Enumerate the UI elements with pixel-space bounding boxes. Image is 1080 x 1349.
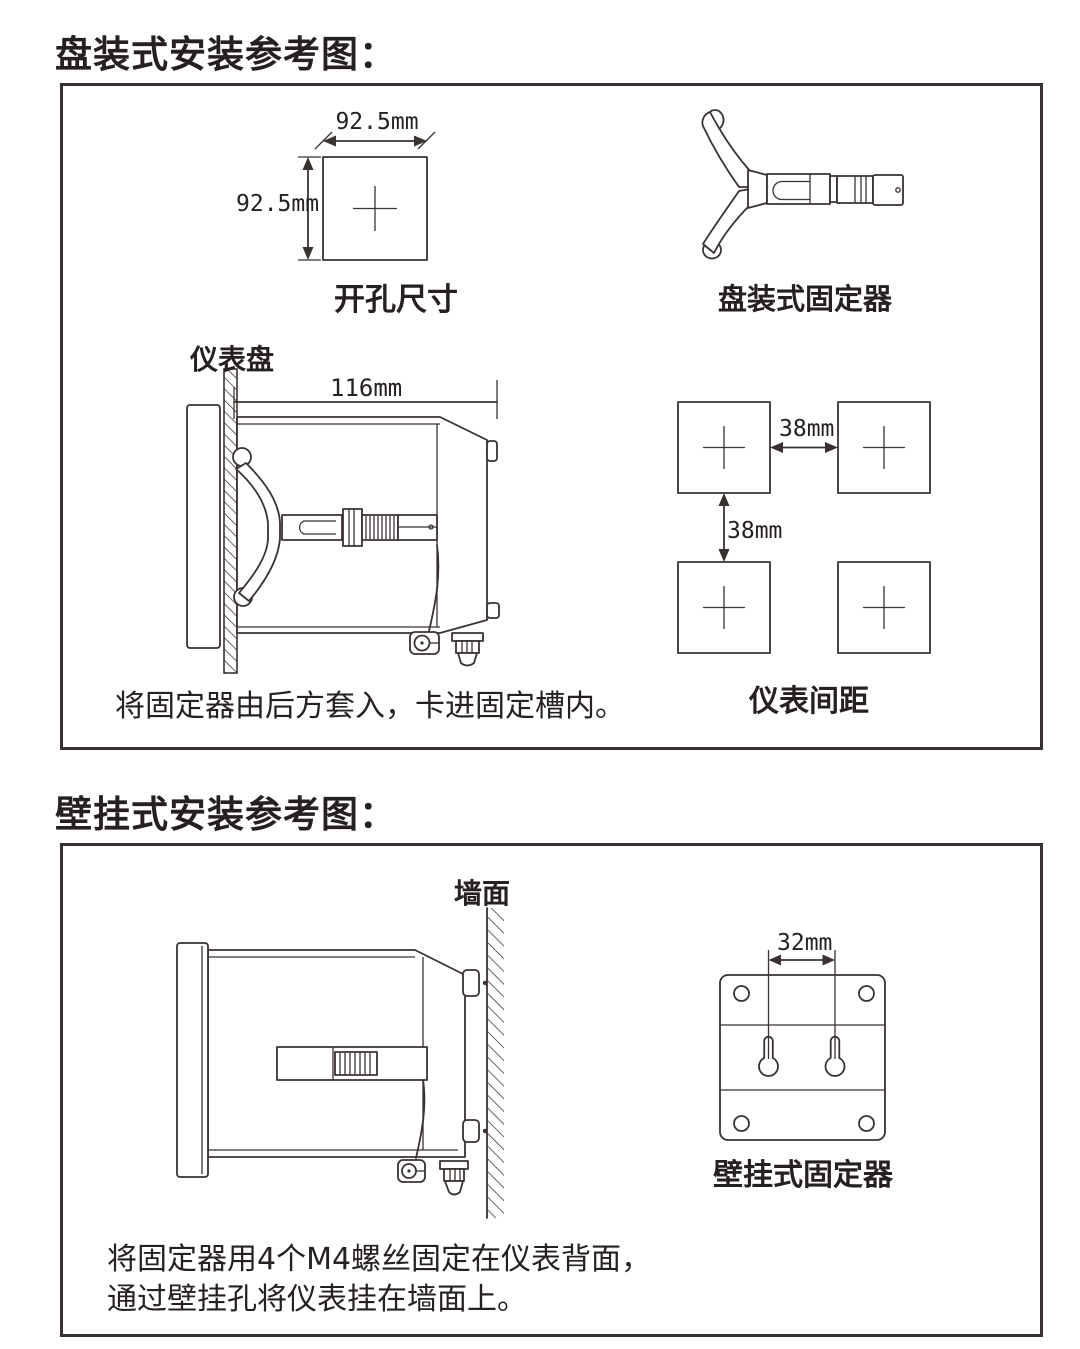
- wall-bracket-drawing: [700, 925, 910, 1160]
- cable-gland: [440, 1161, 468, 1195]
- wall-section-title: 壁挂式安装参考图：: [55, 784, 397, 838]
- wall-mount-caption-line1: 将固定器用4个M4螺丝固定在仪表背面，: [107, 1234, 651, 1278]
- panel-fixer-label: 盘装式固定器: [705, 276, 905, 318]
- cutout-width-dimension: 92.5mm: [330, 109, 424, 135]
- fixer-shaft: [767, 174, 903, 205]
- fixer-handle: [702, 110, 767, 259]
- wall-hatch: [487, 908, 504, 1218]
- cable-gland: [452, 633, 483, 666]
- panel-mount-caption: 将固定器由后方套入，卡进固定槽内。: [115, 681, 625, 725]
- depth-dimension: 116mm: [330, 374, 400, 402]
- panel-surface-label: 仪表盘: [190, 338, 274, 378]
- bottom-screw: [410, 632, 439, 654]
- spacing-label: 仪表间距: [729, 676, 889, 720]
- manual-page: 盘装式安装参考图： 92.5mm 92.5mm 开孔尺寸: [0, 0, 1080, 1349]
- instrument-panel-hatch: [224, 369, 237, 673]
- probe-bar: [277, 1047, 427, 1080]
- wall-sideview-drawing: [160, 870, 520, 1230]
- bottom-screw: [398, 1160, 425, 1182]
- wall-surface-label: 墙面: [454, 872, 510, 912]
- h-gap-dimension: 38mm: [779, 416, 834, 442]
- front-bezel: [177, 943, 208, 1177]
- keyhole-gap-dimension: 32mm: [777, 930, 832, 956]
- panel-fixer-drawing: [690, 103, 920, 273]
- panel-section-title: 盘装式安装参考图：: [55, 24, 397, 78]
- wall-bracket-label: 壁挂式固定器: [703, 1150, 903, 1194]
- cutout-diagram-label: 开孔尺寸: [316, 274, 476, 319]
- cutout-height-dimension: 92.5mm: [236, 191, 319, 217]
- wall-mount-caption-line2: 通过壁挂孔将仪表挂在墙面上。: [107, 1274, 527, 1318]
- v-gap-dimension: 38mm: [727, 518, 782, 544]
- spacing-arrows: [719, 442, 839, 562]
- front-bezel: [187, 405, 220, 648]
